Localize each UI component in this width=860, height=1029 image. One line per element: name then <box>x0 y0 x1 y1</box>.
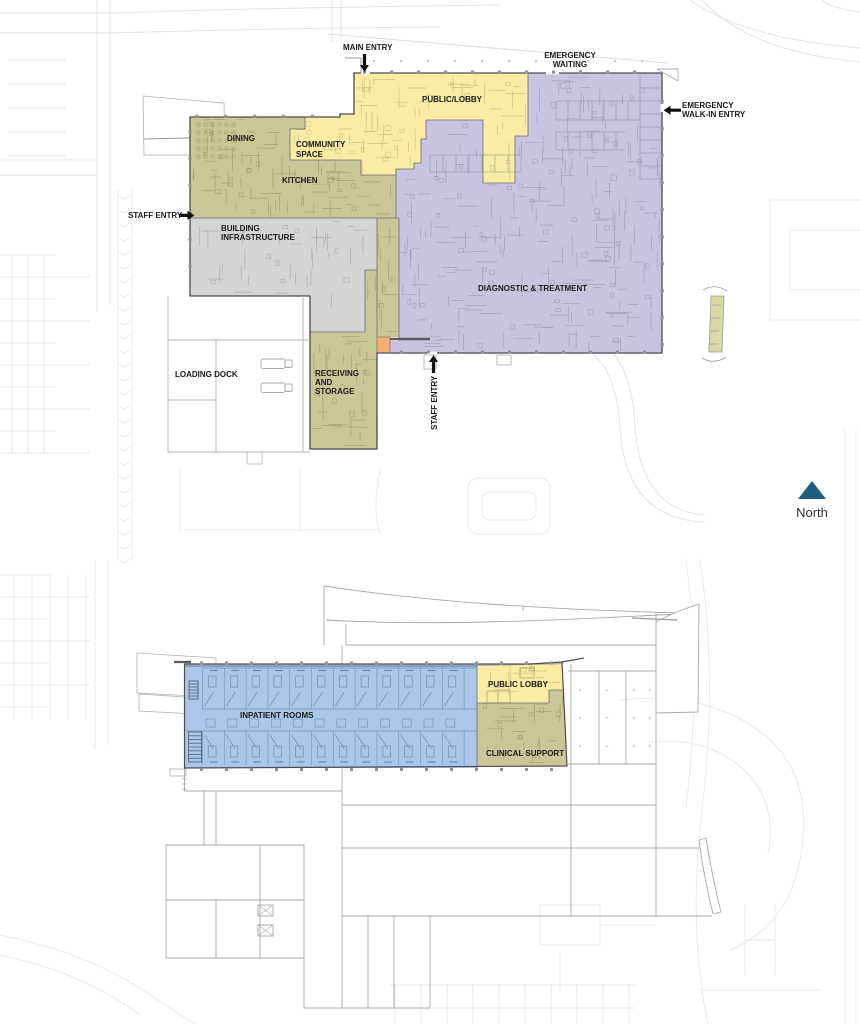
svg-text:STAFF ENTRY: STAFF ENTRY <box>128 211 183 220</box>
svg-text:PUBLIC/LOBBY: PUBLIC/LOBBY <box>422 95 483 104</box>
svg-text:BUILDING: BUILDING <box>221 224 260 233</box>
svg-text:SPACE: SPACE <box>296 150 324 159</box>
svg-text:STORAGE: STORAGE <box>315 387 355 396</box>
svg-text:WALK-IN ENTRY: WALK-IN ENTRY <box>682 110 746 119</box>
svg-text:KITCHEN: KITCHEN <box>282 176 318 185</box>
svg-text:North: North <box>796 505 828 520</box>
svg-text:EMERGENCY: EMERGENCY <box>544 51 596 60</box>
svg-text:WAITING: WAITING <box>553 60 587 69</box>
svg-text:STAFF ENTRY: STAFF ENTRY <box>430 375 439 430</box>
svg-text:DIAGNOSTIC & TREATMENT: DIAGNOSTIC & TREATMENT <box>478 284 587 293</box>
svg-text:EMERGENCY: EMERGENCY <box>682 101 734 110</box>
svg-text:AND: AND <box>315 378 333 387</box>
svg-text:DINING: DINING <box>227 134 255 143</box>
svg-text:INFRASTRUCTURE: INFRASTRUCTURE <box>221 233 295 242</box>
svg-text:LOADING DOCK: LOADING DOCK <box>175 370 238 379</box>
svg-text:CLINICAL SUPPORT: CLINICAL SUPPORT <box>486 749 564 758</box>
svg-text:RECEIVING: RECEIVING <box>315 369 359 378</box>
svg-text:INPATIENT ROOMS: INPATIENT ROOMS <box>240 711 314 720</box>
svg-text:COMMUNITY: COMMUNITY <box>296 140 346 149</box>
svg-text:PUBLIC LOBBY: PUBLIC LOBBY <box>488 680 549 689</box>
svg-text:MAIN ENTRY: MAIN ENTRY <box>343 43 393 52</box>
